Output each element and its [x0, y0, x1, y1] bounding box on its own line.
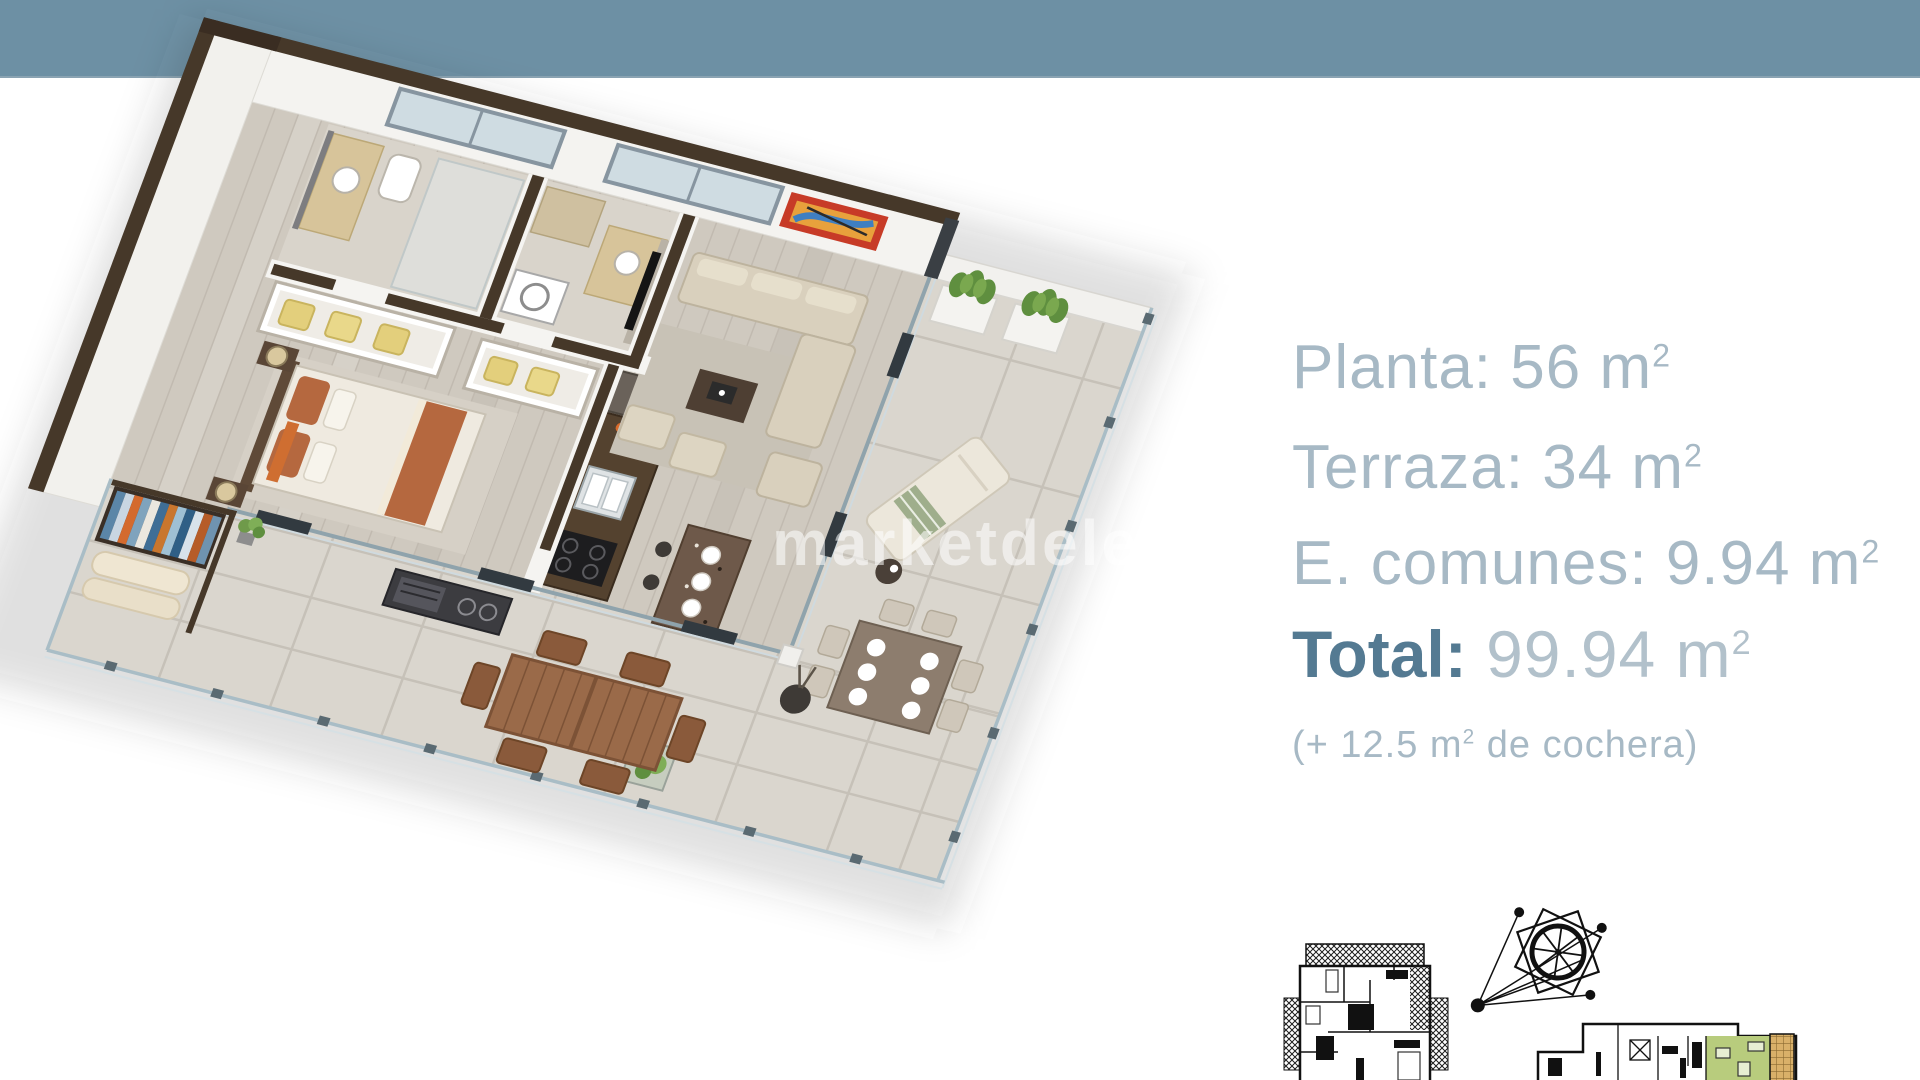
mini-floorplan-2: [1538, 1024, 1796, 1080]
total-sup: 2: [1732, 624, 1752, 662]
comunes-text: E. comunes: 9.94 m: [1292, 529, 1861, 598]
terraza-sup: 2: [1684, 437, 1703, 473]
page: marketdelete Planta: 56 m2 Terraza: 34 m…: [0, 0, 1920, 1080]
cochera-sup: 2: [1463, 725, 1476, 748]
planta-sup: 2: [1652, 337, 1671, 373]
total-value: 99.94 m: [1467, 617, 1732, 691]
watermark: marketdelete: [772, 506, 1203, 580]
miniplans: [1280, 900, 1920, 1080]
mini-floorplan-1: [1284, 944, 1448, 1080]
compass-rose-icon: [1470, 900, 1609, 1029]
comunes-sup: 2: [1861, 533, 1880, 569]
area-line-comunes: E. comunes: 9.94 m2: [1292, 528, 1880, 599]
cochera-suffix: de cochera): [1475, 724, 1698, 766]
